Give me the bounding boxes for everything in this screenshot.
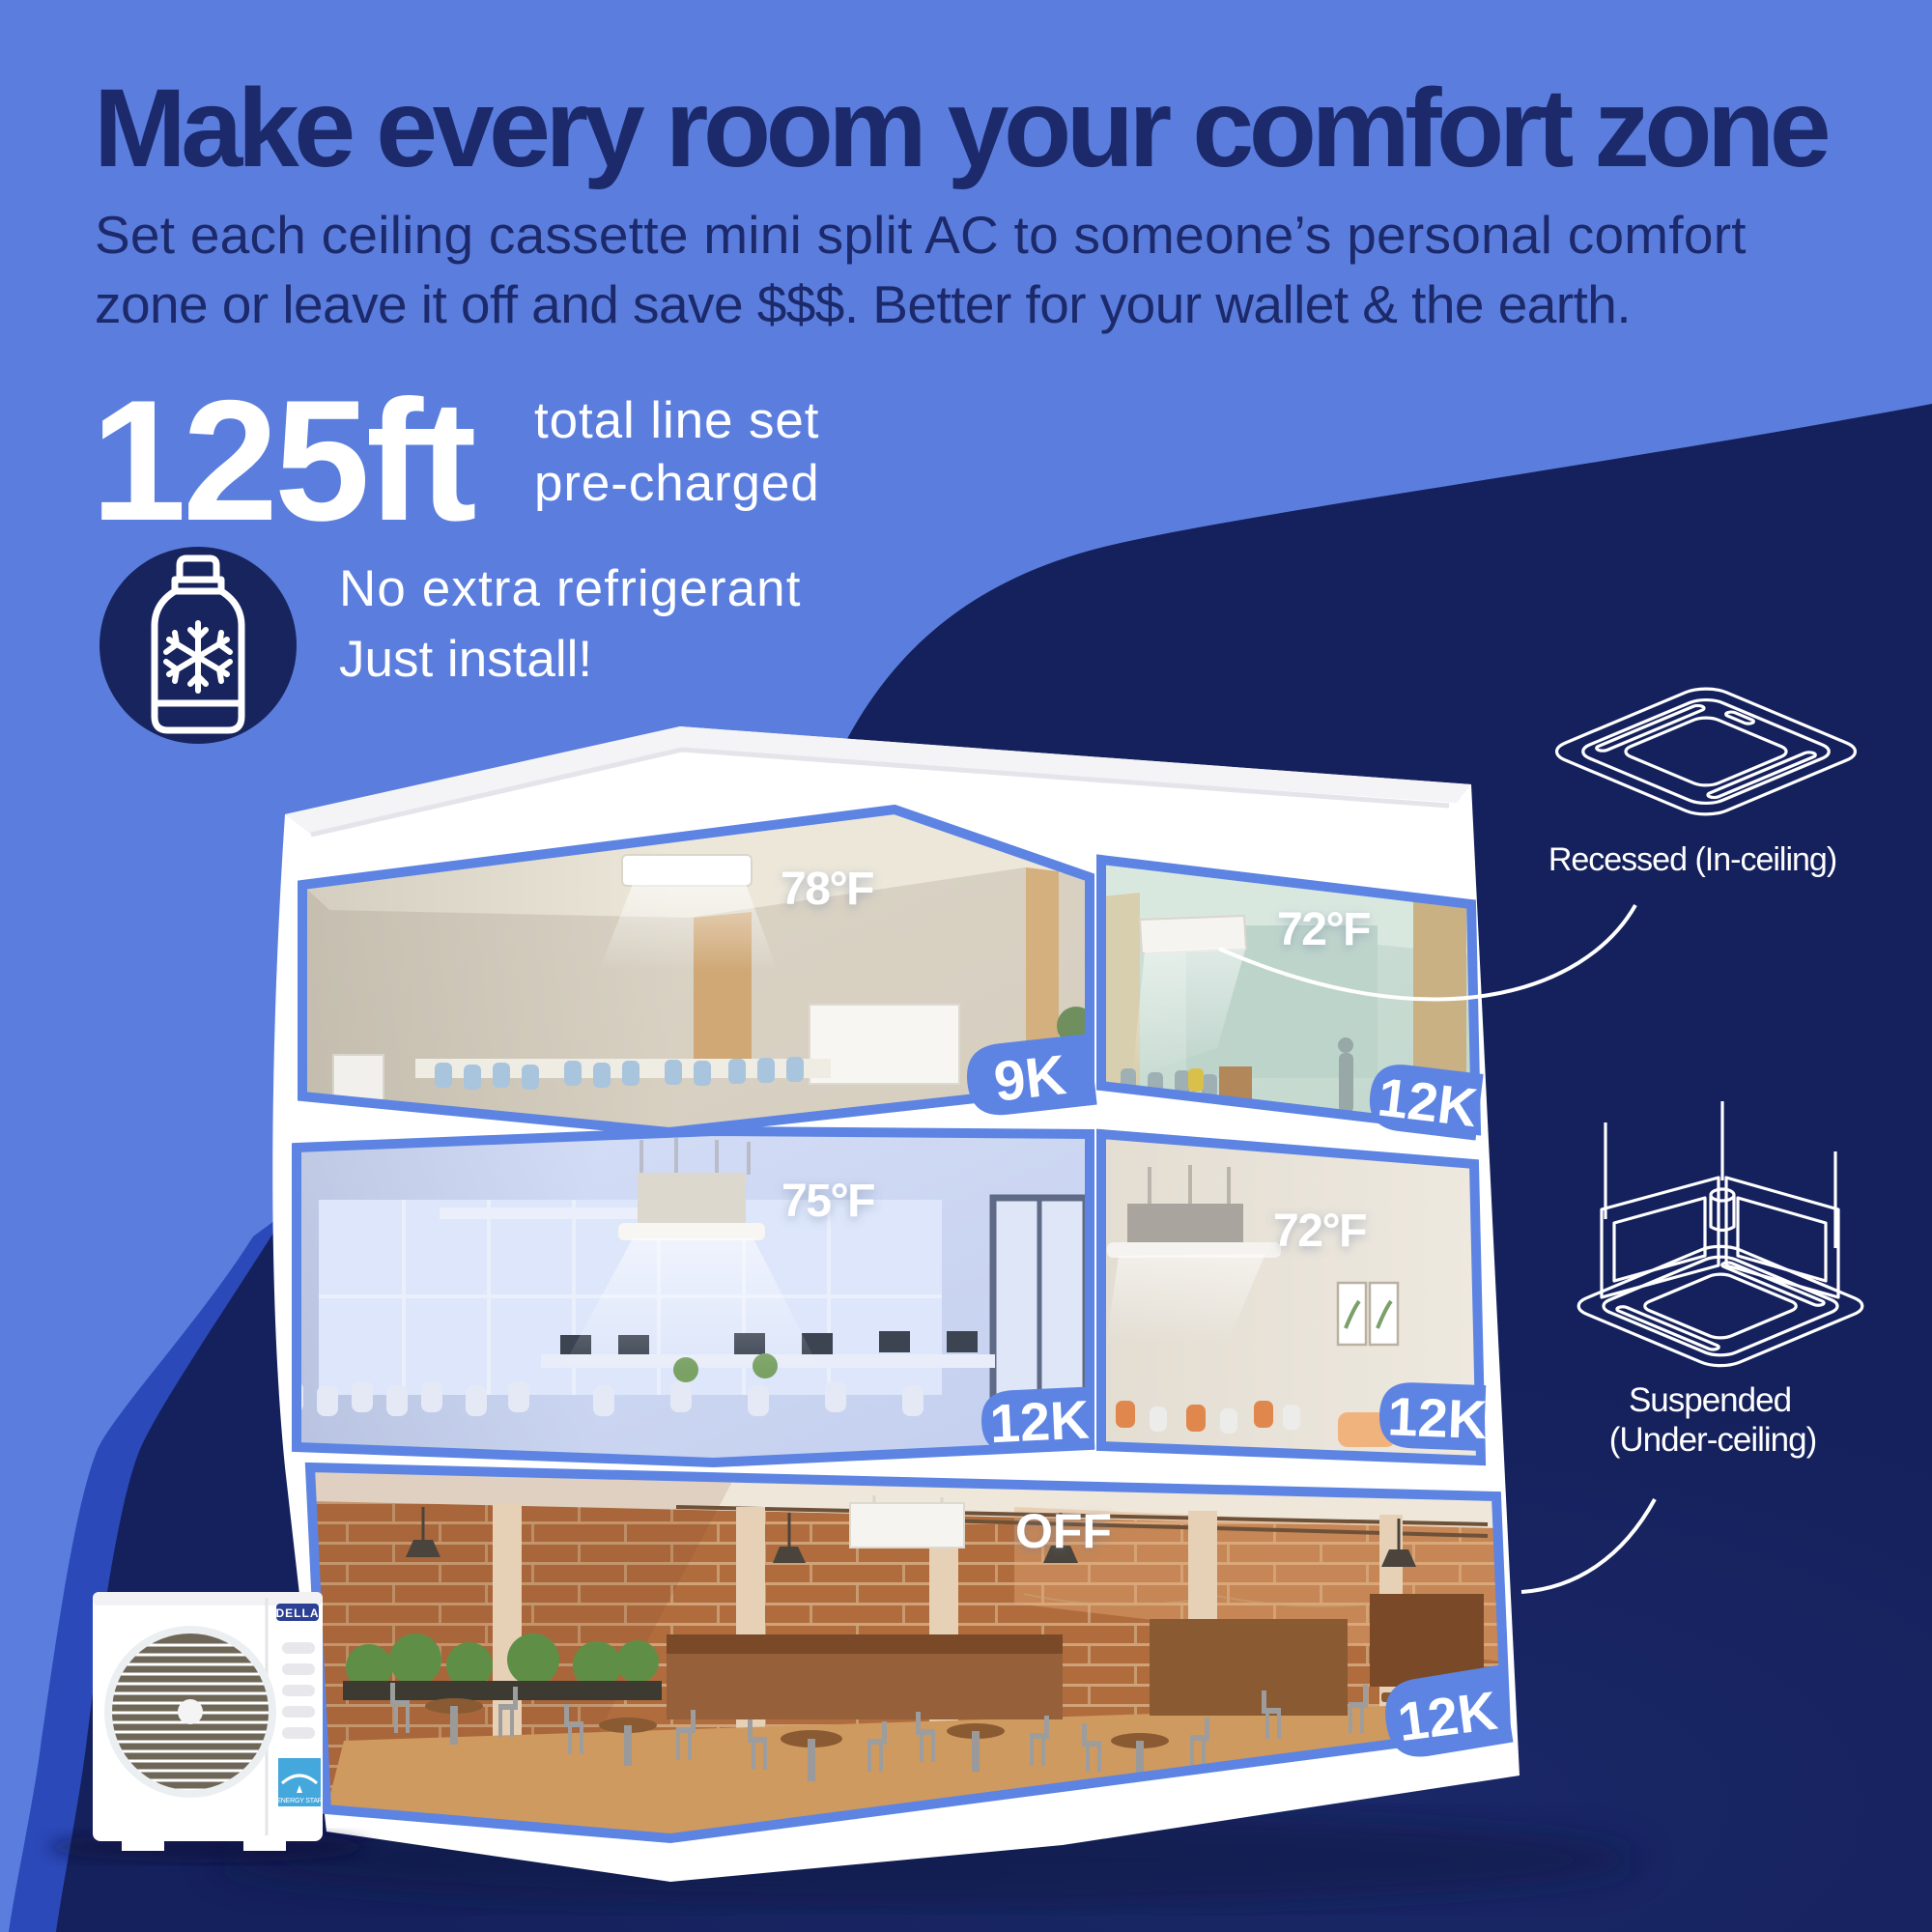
svg-text:125ft: 125ft (91, 364, 475, 556)
svg-text:pre-charged: pre-charged (534, 455, 820, 512)
svg-text:Make every room your comfort z: Make every room your comfort zone (94, 67, 1829, 190)
svg-text:Recessed (In-ceiling): Recessed (In-ceiling) (1548, 841, 1836, 878)
svg-text:(Under-ceiling): (Under-ceiling) (1609, 1421, 1817, 1459)
svg-text:No extra refrigerant: No extra refrigerant (339, 560, 802, 617)
svg-text:total line set: total line set (534, 392, 819, 449)
svg-text:12K: 12K (988, 1389, 1090, 1455)
svg-text:DELLA: DELLA (276, 1606, 320, 1620)
svg-text:Suspended: Suspended (1629, 1381, 1791, 1419)
svg-text:Set each ceiling cassette mini: Set each ceiling cassette mini split AC … (95, 205, 1747, 265)
svg-text:75°F: 75°F (781, 1176, 874, 1227)
svg-text:12K: 12K (1386, 1385, 1488, 1450)
svg-text:12K: 12K (1394, 1680, 1500, 1753)
svg-text:78°F: 78°F (781, 864, 873, 915)
svg-text:72°F: 72°F (1277, 904, 1370, 955)
svg-text:zone or leave it off and save: zone or leave it off and save $$$. Bette… (95, 274, 1631, 334)
svg-text:Just install!: Just install! (339, 631, 592, 688)
svg-text:OFF: OFF (1015, 1504, 1112, 1558)
svg-text:9K: 9K (991, 1043, 1069, 1114)
svg-text:72°F: 72°F (1273, 1206, 1366, 1257)
svg-text:12K: 12K (1375, 1065, 1480, 1138)
svg-text:ENERGY STAR: ENERGY STAR (276, 1798, 322, 1804)
